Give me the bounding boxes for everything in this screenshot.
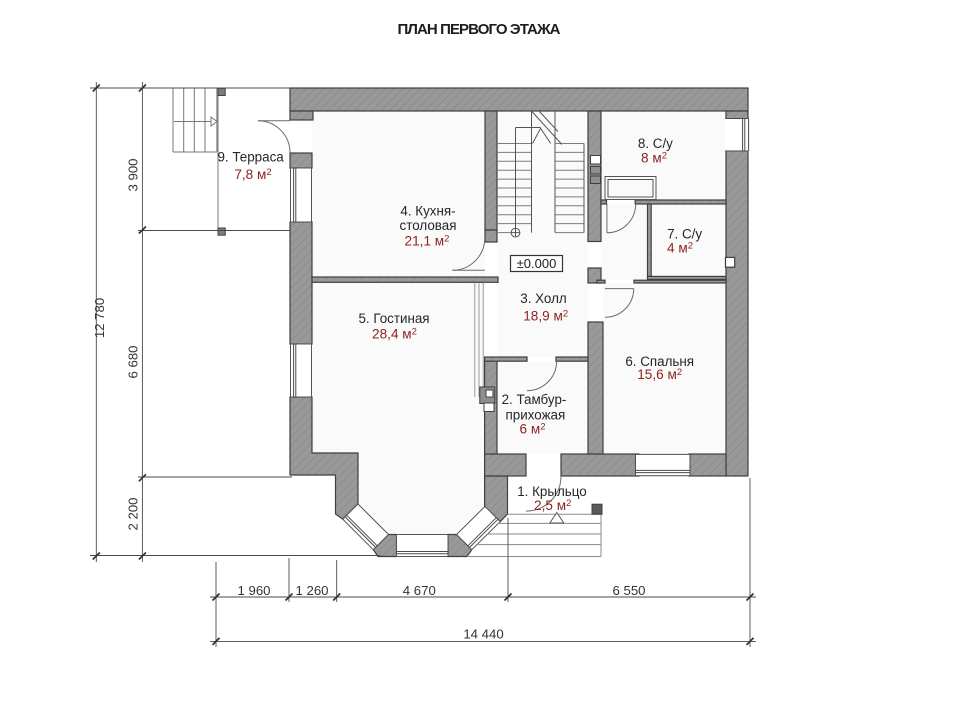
svg-text:7,8 м2: 7,8 м2 (234, 167, 271, 182)
svg-text:±0.000: ±0.000 (517, 256, 557, 271)
svg-text:12 780: 12 780 (92, 298, 107, 338)
svg-text:28,4 м2: 28,4 м2 (372, 327, 417, 342)
svg-text:2 200: 2 200 (126, 497, 141, 530)
svg-text:прихожая: прихожая (506, 408, 566, 423)
svg-text:1. Крыльцо: 1. Крыльцо (517, 484, 587, 499)
svg-text:4. Кухня-: 4. Кухня- (400, 204, 455, 219)
svg-text:7. С/у: 7. С/у (667, 227, 702, 242)
svg-text:9. Терраса: 9. Терраса (217, 150, 284, 165)
svg-text:1 260: 1 260 (295, 583, 328, 598)
svg-text:1 960: 1 960 (237, 583, 270, 598)
svg-text:6 680: 6 680 (126, 345, 141, 378)
svg-text:2,5 м2: 2,5 м2 (534, 498, 571, 513)
svg-text:18,9 м2: 18,9 м2 (523, 309, 568, 324)
svg-text:2. Тамбур-: 2. Тамбур- (502, 392, 567, 407)
svg-text:3. Холл: 3. Холл (520, 291, 566, 306)
svg-text:ПЛАН ПЕРВОГО ЭТАЖА: ПЛАН ПЕРВОГО ЭТАЖА (397, 21, 560, 38)
svg-text:3 900: 3 900 (126, 158, 141, 191)
svg-text:8. С/у: 8. С/у (638, 136, 673, 151)
svg-text:15,6 м2: 15,6 м2 (637, 367, 682, 382)
svg-text:21,1 м2: 21,1 м2 (405, 234, 450, 249)
svg-text:5. Гостиная: 5. Гостиная (358, 311, 429, 326)
svg-text:столовая: столовая (400, 218, 457, 233)
svg-text:14 440: 14 440 (463, 627, 503, 642)
svg-text:6 550: 6 550 (612, 583, 645, 598)
svg-text:4 670: 4 670 (403, 583, 436, 598)
